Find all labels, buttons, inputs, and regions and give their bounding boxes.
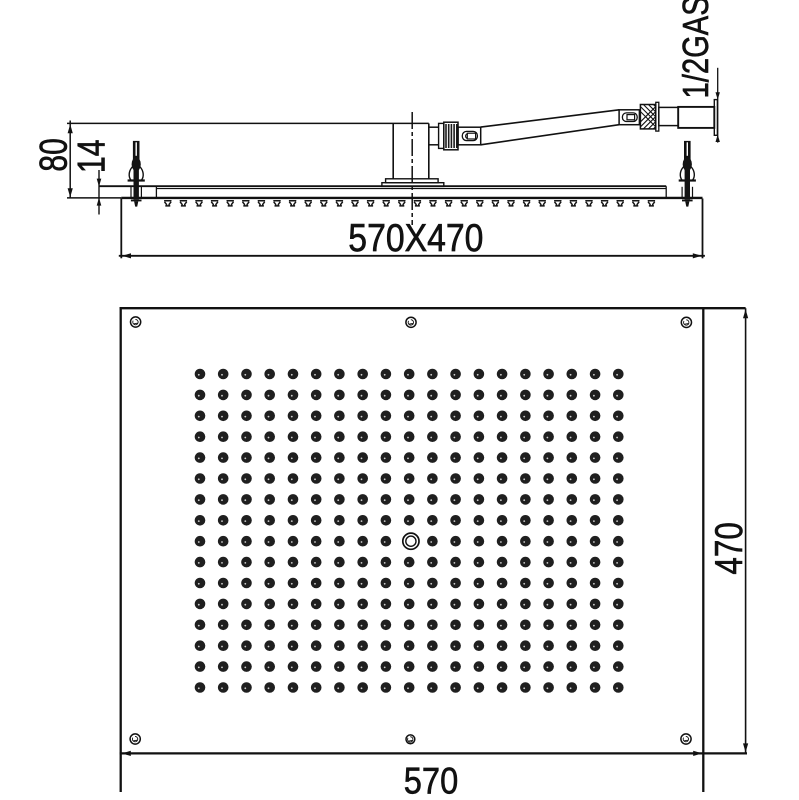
svg-text:470: 470	[708, 522, 751, 574]
svg-text:570: 570	[404, 760, 458, 800]
svg-text:14: 14	[71, 140, 113, 173]
svg-text:570X470: 570X470	[348, 216, 483, 260]
svg-text:1/2GAS: 1/2GAS	[676, 0, 717, 98]
svg-text:80: 80	[33, 138, 75, 171]
